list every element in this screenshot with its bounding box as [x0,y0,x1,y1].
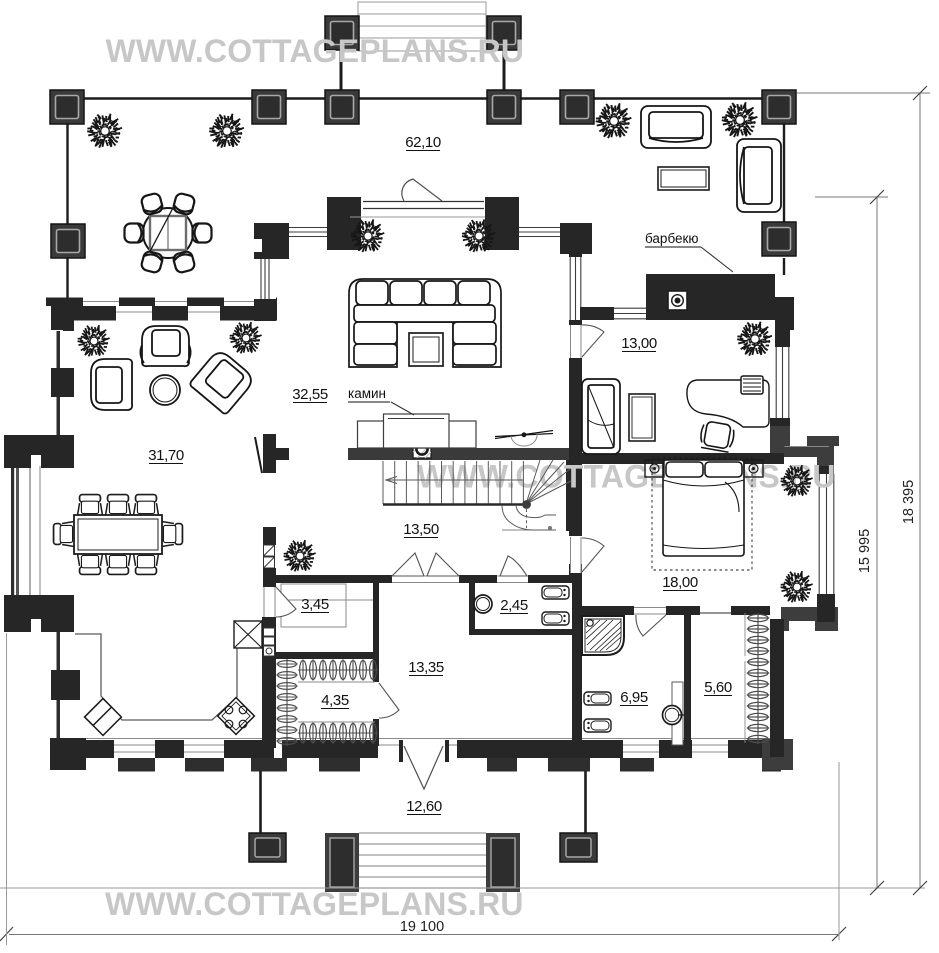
svg-text:13,50: 13,50 [403,521,439,538]
svg-text:WWW.COTTAGEPLANS.RU: WWW.COTTAGEPLANS.RU [105,886,524,922]
svg-text:WWW.COTTAGEPLANS.RU: WWW.COTTAGEPLANS.RU [417,459,836,495]
svg-text:13,00: 13,00 [621,335,657,352]
svg-text:18,00: 18,00 [662,574,698,591]
svg-text:31,70: 31,70 [148,447,184,464]
svg-text:62,10: 62,10 [405,134,441,151]
svg-text:камин: камин [348,386,386,401]
svg-text:13,35: 13,35 [408,659,444,676]
svg-text:WWW.COTTAGEPLANS.RU: WWW.COTTAGEPLANS.RU [106,33,525,69]
svg-text:барбекю: барбекю [645,231,699,246]
svg-text:3,45: 3,45 [301,596,329,613]
svg-text:19 100: 19 100 [400,919,444,935]
svg-text:2,45: 2,45 [500,597,528,614]
svg-text:6,95: 6,95 [620,689,648,706]
svg-text:32,55: 32,55 [292,386,328,403]
svg-text:15 995: 15 995 [857,529,873,573]
svg-text:4,35: 4,35 [321,692,349,709]
svg-text:12,60: 12,60 [406,798,442,815]
svg-text:18 395: 18 395 [901,480,917,524]
svg-text:5,60: 5,60 [704,679,732,696]
